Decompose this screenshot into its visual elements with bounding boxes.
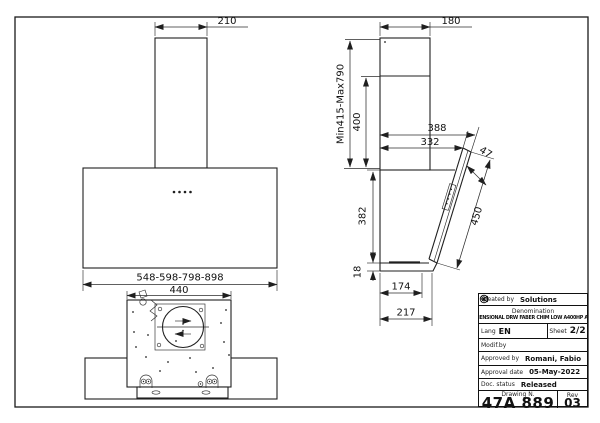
dim-text-400: 400	[352, 112, 363, 131]
title-block: Created by Solutions Denomination DIMENS…	[478, 293, 588, 407]
title-row-drawing-number: Drawing N. 47A 889 Rev 03	[479, 390, 587, 408]
title-row-doc-status: Doc. status Released	[479, 378, 587, 390]
denomination-label: Denomination	[512, 308, 554, 315]
dim-front-chimney-width: 210	[155, 16, 248, 36]
side-view: 180 Min415-Max790 400 388 332	[336, 16, 495, 326]
dim-text-210: 210	[217, 16, 236, 27]
dim-side-glass-top-offset: 47	[467, 145, 494, 185]
created-by-value: Solutions	[520, 296, 557, 304]
side-hood-body	[380, 170, 455, 271]
dim-text-174: 174	[391, 282, 410, 293]
plan-motor-box	[127, 300, 231, 387]
dim-text-382: 382	[358, 206, 369, 225]
doc-status-value: Released	[521, 381, 557, 389]
rev-value: 03	[564, 399, 581, 408]
dim-text-388: 388	[427, 123, 446, 134]
sheet-value: 2/2	[570, 326, 586, 336]
dim-plan-body-width: 440	[127, 285, 231, 299]
plan-mounting-bracket	[137, 387, 228, 398]
lang-label: Lang	[481, 328, 496, 335]
approval-date-label: Approval date	[481, 369, 523, 376]
dim-text-440: 440	[169, 285, 188, 296]
title-row-lang-sheet: Lang EN Sheet 2/2	[479, 323, 587, 338]
title-row-approval-date: Approval date 05-May-2022	[479, 365, 587, 378]
front-chimney	[155, 38, 207, 168]
dim-text-217: 217	[396, 308, 415, 319]
drawing-number-cell: Drawing N. 47A 889	[479, 391, 557, 408]
dim-text-450: 450	[469, 206, 485, 227]
rev-cell: Rev 03	[558, 391, 587, 408]
title-row-denomination: Denomination DIMENSIONAL DRW FABER CHIM …	[479, 305, 587, 323]
modif-by-label: Modif.by	[481, 342, 506, 349]
dim-side-chimney-lower: 400	[352, 77, 380, 168]
side-glass-panel	[429, 148, 471, 263]
title-row-approved-by: Approved by Romani, Fabio	[479, 351, 587, 365]
dim-text-18: 18	[353, 266, 364, 279]
front-hood-body	[83, 168, 277, 268]
denomination-value: DIMENSIONAL DRW FABER CHIM LOW A400HP A4…	[479, 315, 587, 321]
dim-text-548-898: 548-598-798-898	[136, 273, 223, 284]
approved-by-label: Approved by	[481, 355, 519, 362]
lang-value: EN	[499, 327, 511, 336]
dim-side-body-height: 382	[358, 170, 381, 263]
front-view: 210 548-598-798-898	[83, 16, 277, 291]
title-row-modif-by: Modif.by	[479, 338, 587, 351]
approved-by-value: Romani, Fabio	[525, 355, 581, 363]
drawing-page: 210 548-598-798-898	[0, 0, 600, 423]
sheet-label: Sheet	[549, 328, 566, 335]
doc-status-label: Doc. status	[481, 381, 515, 388]
dim-side-height-range: Min415-Max790	[336, 40, 381, 169]
lang-cell: Lang EN	[479, 324, 547, 338]
side-chimney	[380, 38, 430, 170]
drawing-number-value: 47A 889	[482, 398, 555, 408]
dim-text-47: 47	[477, 145, 494, 161]
dim-side-bottom-lip: 18	[353, 253, 381, 281]
dim-side-chimney-depth: 180	[380, 16, 472, 36]
plan-view: 440	[85, 285, 277, 399]
dim-text-180: 180	[441, 16, 460, 27]
title-row-created-by: Created by Solutions	[479, 294, 587, 305]
dim-text-min415-max790: Min415-Max790	[336, 64, 347, 144]
dim-text-332: 332	[420, 137, 439, 148]
sheet-cell: Sheet 2/2	[547, 324, 587, 338]
approval-date-value: 05-May-2022	[529, 368, 580, 376]
